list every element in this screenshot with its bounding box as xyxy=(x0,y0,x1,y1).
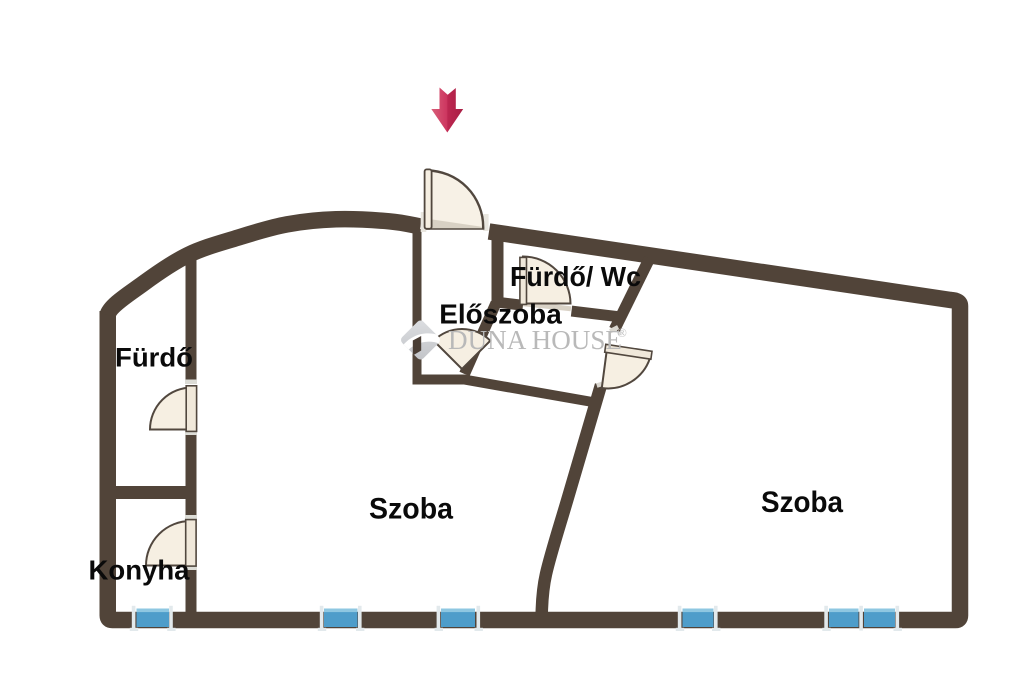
svg-text:Konyha: Konyha xyxy=(89,555,190,586)
svg-text:Előszoba: Előszoba xyxy=(439,299,562,330)
svg-text:Fürdő: Fürdő xyxy=(115,343,193,373)
svg-text:Szoba: Szoba xyxy=(761,486,843,519)
svg-text:Szoba: Szoba xyxy=(369,493,453,526)
svg-text:®: ® xyxy=(617,325,627,340)
svg-text:Fürdő/ Wc: Fürdő/ Wc xyxy=(510,261,641,292)
